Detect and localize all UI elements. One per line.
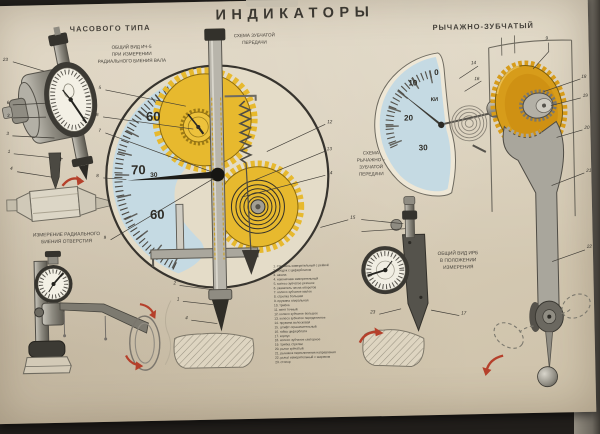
sector-dial-10: 10 bbox=[408, 79, 417, 87]
callout: 9 bbox=[104, 236, 107, 241]
callout: 1 bbox=[177, 297, 180, 302]
center-dial-70: 70 bbox=[131, 163, 146, 176]
callout: 5 bbox=[98, 86, 101, 91]
irb-body bbox=[403, 234, 429, 330]
callout: 21 bbox=[586, 169, 591, 174]
callout: 22 bbox=[587, 245, 592, 250]
caption-gear-scheme: СХЕМА ЗУБЧАТОЙ ПЕРЕДАЧИ bbox=[219, 32, 289, 47]
callout: 4 bbox=[10, 167, 13, 172]
parts-legend-list: 1. стержень измерительный с рейкой2. обо… bbox=[273, 262, 375, 364]
callout: 3 bbox=[7, 114, 10, 119]
callout: 1 bbox=[8, 150, 11, 155]
parts-legend: 1. стержень измерительный с рейкой2. обо… bbox=[273, 262, 375, 366]
sector-dial-brand: КИ bbox=[431, 98, 438, 104]
callout: 16 bbox=[474, 77, 479, 82]
measuring-tip bbox=[79, 164, 92, 181]
center-dial-60-bottom: 60 bbox=[150, 208, 165, 221]
callout: 3 bbox=[6, 132, 9, 137]
shaft-runout-measurement bbox=[6, 152, 110, 222]
center-dial-60-top: 60 bbox=[146, 110, 161, 123]
center-dial-30: 30 bbox=[150, 173, 157, 180]
callout: 2 bbox=[173, 281, 176, 286]
swing-arrow bbox=[486, 356, 503, 371]
caption-irb: ОБЩИЙ ВИД ИРБ В ПОЛОЖЕНИИ ИЗМЕРЕНИЯ bbox=[425, 250, 491, 273]
callout: 13 bbox=[327, 147, 332, 152]
callout: 6 bbox=[96, 113, 99, 118]
caption-ich5: ОБЩИЙ ВИД ИЧ-5 ПРИ ИЗМЕРЕНИИ РАДИАЛЬНОГО… bbox=[81, 43, 183, 66]
bore-runout-stand bbox=[21, 249, 161, 374]
callout: 8 bbox=[96, 174, 99, 179]
measuring-arm bbox=[60, 301, 149, 335]
callout: 15 bbox=[350, 216, 355, 221]
callout: 17 bbox=[461, 311, 466, 316]
callout: 20 bbox=[584, 126, 589, 131]
callout: 23 bbox=[3, 58, 8, 63]
callout: 18 bbox=[581, 75, 586, 80]
frame-bar bbox=[151, 248, 258, 259]
callout: 14 bbox=[471, 61, 476, 66]
callout: 12 bbox=[327, 120, 332, 125]
hairspring bbox=[451, 105, 487, 141]
callout: 7 bbox=[98, 129, 101, 134]
callout: 4 bbox=[185, 316, 188, 321]
sector-dial-30: 30 bbox=[419, 144, 428, 152]
ball-stylus bbox=[537, 366, 557, 386]
callout: 9 bbox=[545, 37, 548, 42]
gear-lever bbox=[503, 121, 567, 309]
callout: 14 bbox=[327, 171, 332, 176]
rod-tip bbox=[212, 299, 230, 331]
poster: ИНДИКАТОРЫ ЧАСОВОГО ТИПА РЫЧАЖНО-ЗУБЧАТЫ… bbox=[0, 0, 596, 424]
mounting-clip bbox=[246, 0, 298, 7]
caption-lever-gear-scheme: СХЕМА РЫЧАЖНО – ЗУБЧАТОЙ ПЕРЕДАЧИ bbox=[345, 150, 398, 179]
poster-photo: { "poster": { "title": "ИНДИКАТОРЫ" }, "… bbox=[0, 0, 600, 434]
sector-dial-0: 0 bbox=[434, 69, 439, 77]
poster-canvas: ИНДИКАТОРЫ ЧАСОВОГО ТИПА РЫЧАЖНО-ЗУБЧАТЫ… bbox=[0, 0, 600, 424]
sector-dial-20: 20 bbox=[404, 114, 413, 122]
callout: 19 bbox=[583, 94, 588, 99]
caption-bore-runout: ИЗМЕРЕНИЕ РАДИАЛЬНОГО БИЕНИЯ ОТВЕРСТИЯ bbox=[24, 231, 108, 247]
callout: 6 bbox=[7, 101, 10, 106]
